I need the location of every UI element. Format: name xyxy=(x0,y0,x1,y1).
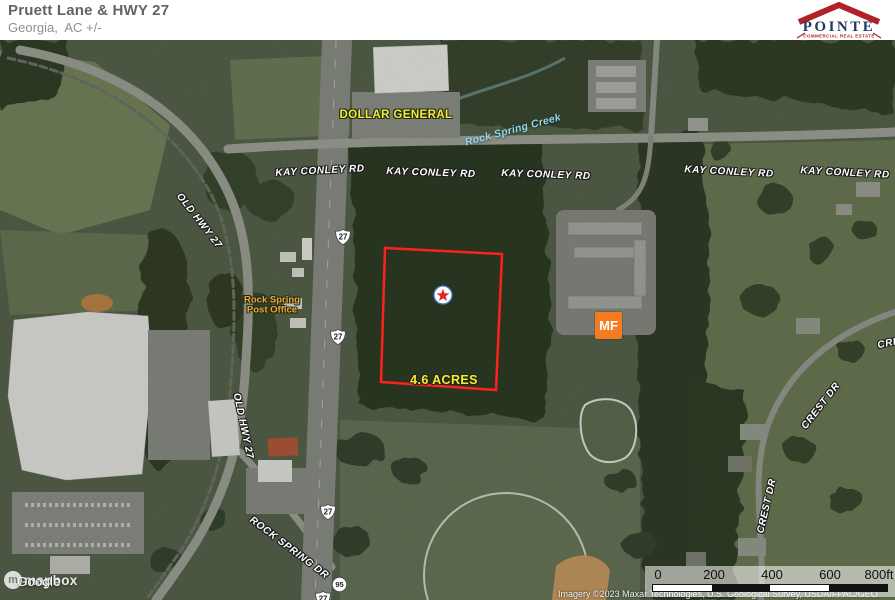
svg-text:27: 27 xyxy=(339,232,348,241)
ga-95-shield: 95 xyxy=(331,576,349,594)
scale-segments xyxy=(652,584,888,592)
svg-text:COMMERCIAL REAL ESTATE: COMMERCIAL REAL ESTATE xyxy=(803,34,874,39)
us-27-shield-4: 27 xyxy=(314,590,332,600)
svg-text:27: 27 xyxy=(319,594,328,600)
page: DOLLAR GENERAL Rock Spring Creek KAY CON… xyxy=(0,0,895,600)
mf-badge: MF xyxy=(595,312,622,339)
page-subtitle: Georgia, AC +/- xyxy=(8,20,102,35)
scale-tick-800ft: 800ft xyxy=(865,567,894,582)
page-title: Pruett Lane & HWY 27 xyxy=(8,2,169,19)
svg-text:27: 27 xyxy=(334,332,343,341)
google-watermark[interactable]: Google xyxy=(17,574,61,589)
aerial-imagery xyxy=(0,40,895,600)
us-27-shield-2: 27 xyxy=(329,328,347,346)
svg-text:95: 95 xyxy=(335,580,343,589)
pointe-logo: POINTE COMMERCIAL REAL ESTATE xyxy=(789,1,889,39)
aerial-map[interactable]: DOLLAR GENERAL Rock Spring Creek KAY CON… xyxy=(0,40,895,600)
svg-text:27: 27 xyxy=(324,507,333,516)
grain-texture xyxy=(0,40,895,600)
us-27-shield-3: 27 xyxy=(319,503,337,521)
scale-tick-600: 600 xyxy=(819,567,841,582)
header: Pruett Lane & HWY 27 Georgia, AC +/- POI… xyxy=(0,0,895,40)
scale-tick-0: 0 xyxy=(654,567,661,582)
parcel-star-marker xyxy=(434,286,452,304)
us-27-shield-1: 27 xyxy=(334,228,352,246)
scale-bar: 0 200 400 600 800ft xyxy=(645,566,895,597)
scale-tick-200: 200 xyxy=(703,567,725,582)
scale-tick-400: 400 xyxy=(761,567,783,582)
